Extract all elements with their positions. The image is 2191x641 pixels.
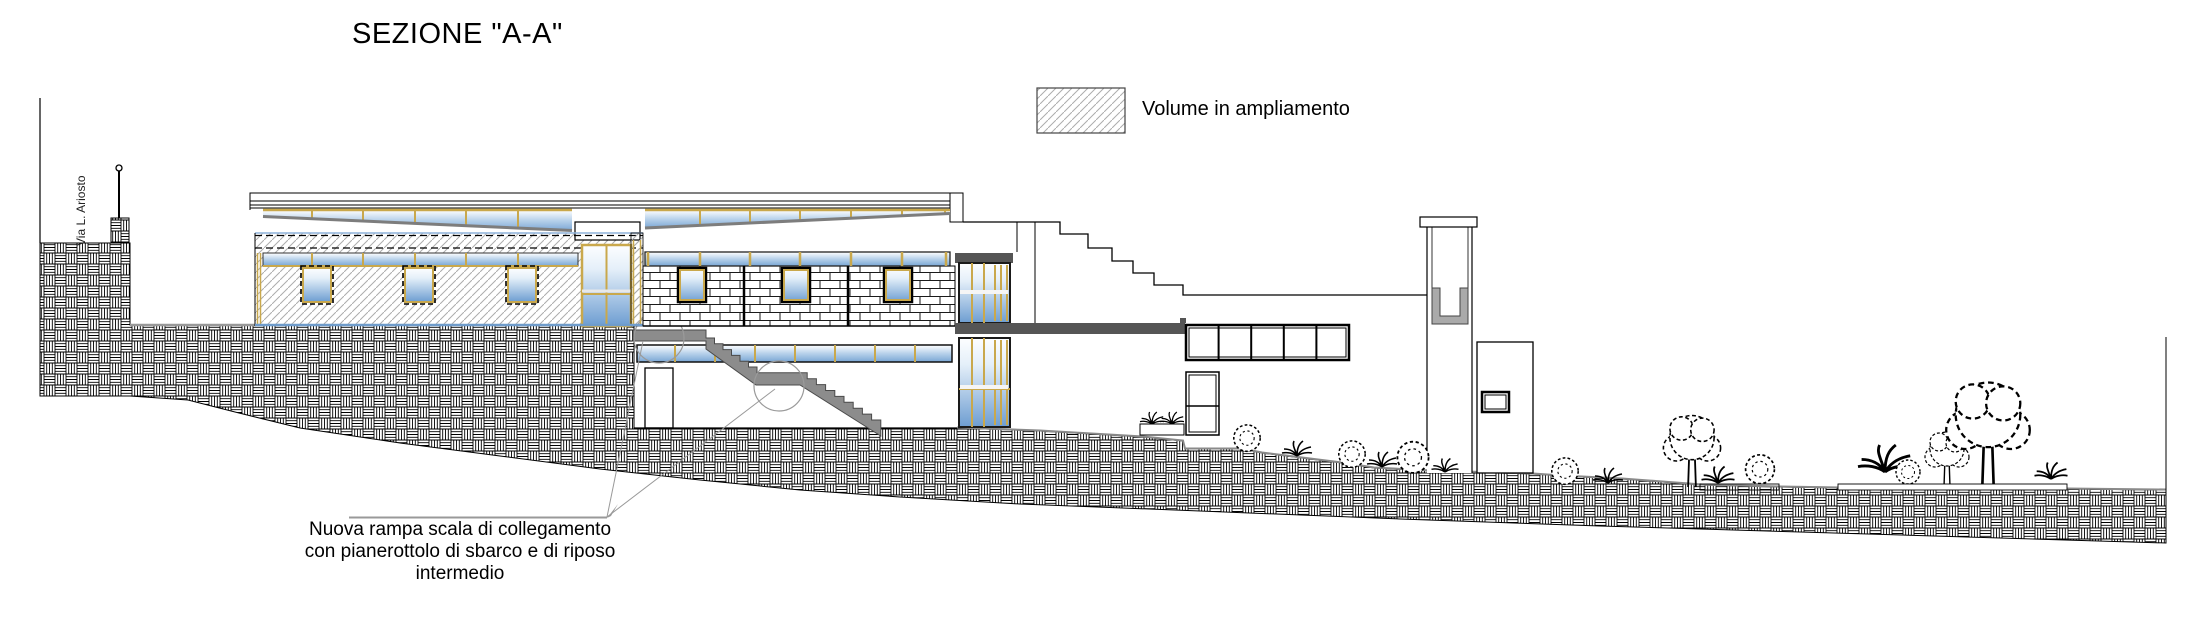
roof-center-box <box>575 222 640 240</box>
page-title: SEZIONE "A-A" <box>352 18 563 51</box>
planter-box <box>1838 484 2067 490</box>
lower-level-door <box>645 368 673 428</box>
bay-ceiling-slab <box>955 253 1013 263</box>
clerestory-left <box>263 210 572 231</box>
rear-block <box>1477 342 1533 473</box>
glazed-door <box>582 245 631 326</box>
stepped-roof-profile <box>963 222 1427 295</box>
terrace-floor-slab <box>955 323 1185 334</box>
chimney-tower <box>1420 217 1477 473</box>
stair-annotation: Nuova rampa scala di collegamento con pi… <box>225 519 695 585</box>
legend-hatch-swatch <box>1037 88 1125 133</box>
annotation-line: intermedio <box>225 563 695 585</box>
terrace-door <box>1186 372 1219 435</box>
street-name-label: Via L. Ariosto <box>74 176 88 247</box>
upper-glazing-strip-left <box>263 253 578 266</box>
roof-fascia <box>250 193 963 201</box>
clerestory-right <box>645 210 950 229</box>
glazed-bay <box>955 222 1186 427</box>
terrace-railing <box>1186 325 1349 360</box>
upper-glazing-strip-right <box>645 252 950 266</box>
detail-circle-landing <box>754 361 804 411</box>
railing-post-knob <box>116 165 122 171</box>
annotation-line: con pianerottolo di sbarco e di riposo <box>225 541 695 563</box>
railing-pedestal <box>111 218 129 243</box>
legend-label: Volume in ampliamento <box>1142 98 1350 121</box>
section-drawing-canvas: SEZIONE "A-A" Volume in ampliamento Via … <box>0 0 2191 641</box>
right-wing <box>643 252 955 326</box>
annotation-line: Nuova rampa scala di collegamento <box>225 519 695 541</box>
planter-ledge <box>1140 412 1184 435</box>
roof-fascia-end-cap <box>950 193 963 222</box>
tree-icon <box>1946 383 2030 488</box>
